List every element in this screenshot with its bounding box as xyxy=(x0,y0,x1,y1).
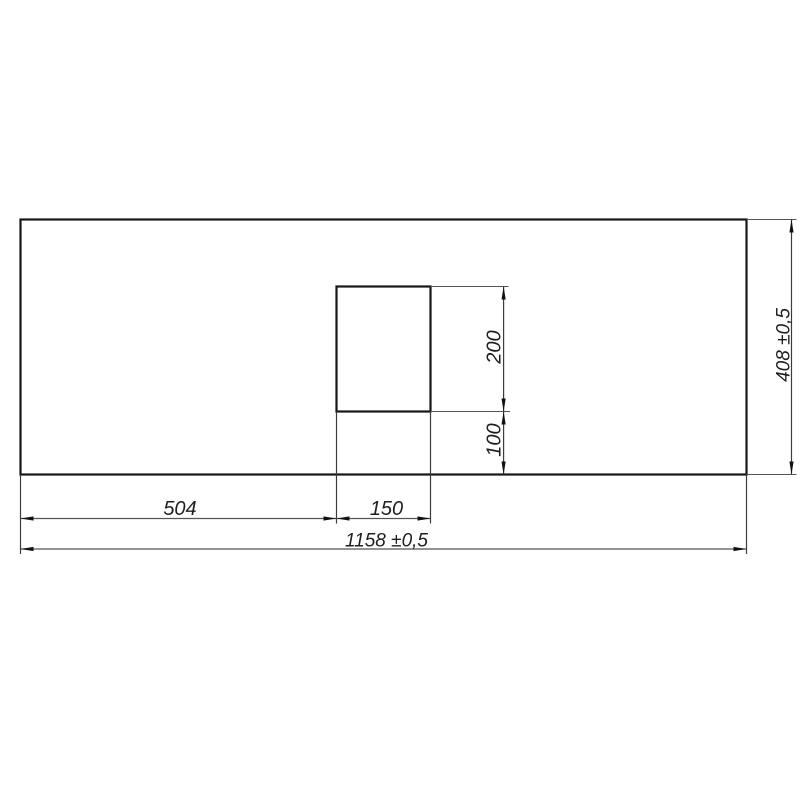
svg-text:408 ±0,5: 408 ±0,5 xyxy=(774,308,795,382)
svg-text:1158 ±0,5: 1158 ±0,5 xyxy=(345,531,428,552)
svg-text:150: 150 xyxy=(370,498,403,520)
svg-text:504: 504 xyxy=(163,498,196,520)
svg-text:100: 100 xyxy=(484,423,506,456)
svg-text:200: 200 xyxy=(484,330,506,364)
